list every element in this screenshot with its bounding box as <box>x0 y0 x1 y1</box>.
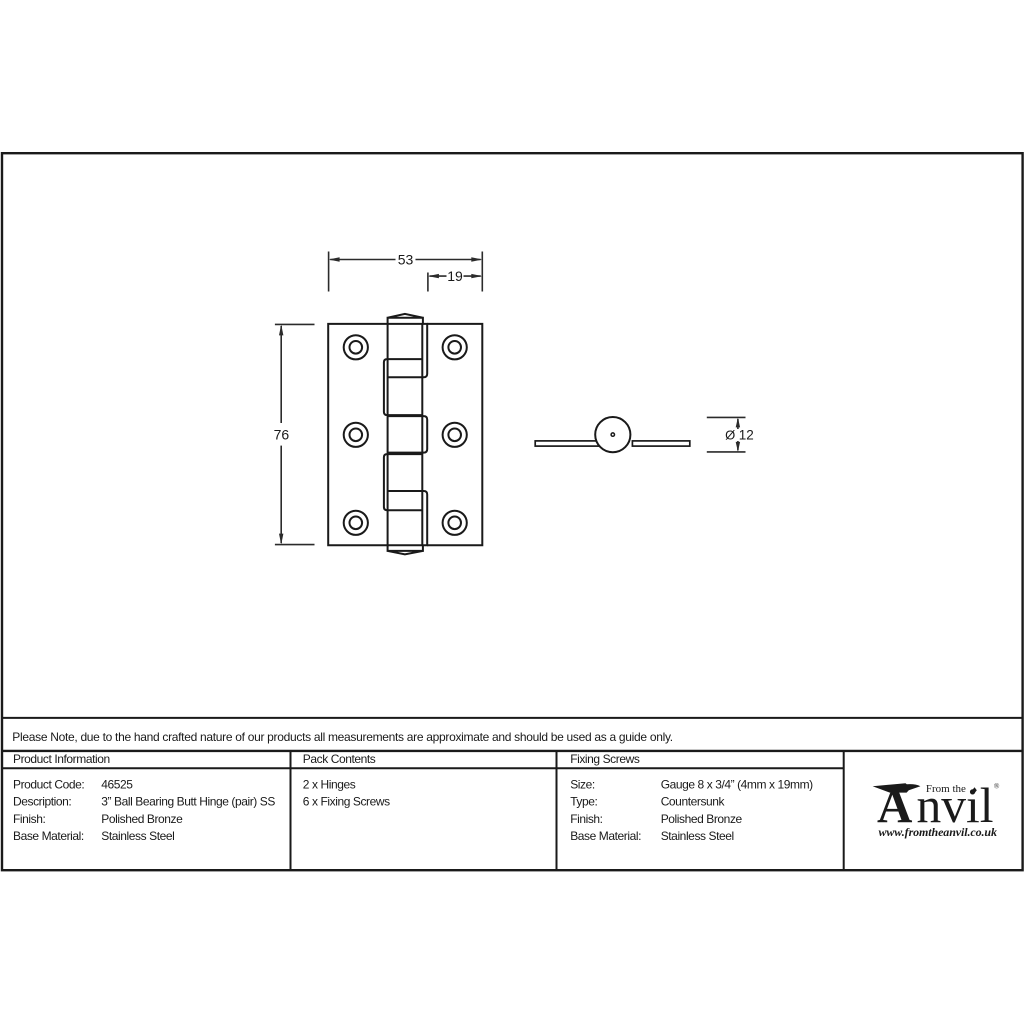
svg-text:Stainless Steel: Stainless Steel <box>661 829 734 843</box>
svg-text:Ø: Ø <box>725 427 735 442</box>
svg-text:Gauge 8 x 3/4” (4mm x 19mm): Gauge 8 x 3/4” (4mm x 19mm) <box>661 778 813 792</box>
svg-text:Countersunk: Countersunk <box>661 795 726 809</box>
svg-text:12: 12 <box>739 427 754 442</box>
svg-text:6 x Fixing Screws: 6 x Fixing Screws <box>303 795 390 809</box>
svg-text:www.fromtheanvil.co.uk: www.fromtheanvil.co.uk <box>879 825 997 839</box>
svg-text:Polished Bronze: Polished Bronze <box>101 812 183 826</box>
svg-text:Pack Contents: Pack Contents <box>303 752 376 766</box>
svg-text:Finish:: Finish: <box>13 812 45 826</box>
svg-text:Type:: Type: <box>570 795 597 809</box>
svg-text:From the: From the <box>926 783 966 795</box>
svg-text:Stainless Steel: Stainless Steel <box>101 829 174 843</box>
svg-text:46525: 46525 <box>101 778 133 792</box>
svg-text:53: 53 <box>398 251 414 267</box>
svg-text:®: ® <box>994 782 1000 791</box>
svg-text:19: 19 <box>447 268 463 284</box>
svg-text:Base Material:: Base Material: <box>570 829 641 843</box>
svg-text:Polished Bronze: Polished Bronze <box>661 812 743 826</box>
svg-text:Description:: Description: <box>13 795 71 809</box>
svg-text:Base Material:: Base Material: <box>13 829 84 843</box>
svg-text:2 x Hinges: 2 x Hinges <box>303 778 356 792</box>
svg-text:Size:: Size: <box>570 778 595 792</box>
svg-text:3” Ball Bearing Butt Hinge (pa: 3” Ball Bearing Butt Hinge (pair) SS <box>101 795 275 809</box>
svg-text:76: 76 <box>274 426 290 442</box>
svg-text:Fixing Screws: Fixing Screws <box>570 752 640 766</box>
svg-text:Product Information: Product Information <box>13 752 110 766</box>
svg-text:Product Code:: Product Code: <box>13 778 84 792</box>
svg-text:Please Note, due to the hand c: Please Note, due to the hand crafted nat… <box>12 730 672 744</box>
svg-text:Finish:: Finish: <box>570 812 602 826</box>
